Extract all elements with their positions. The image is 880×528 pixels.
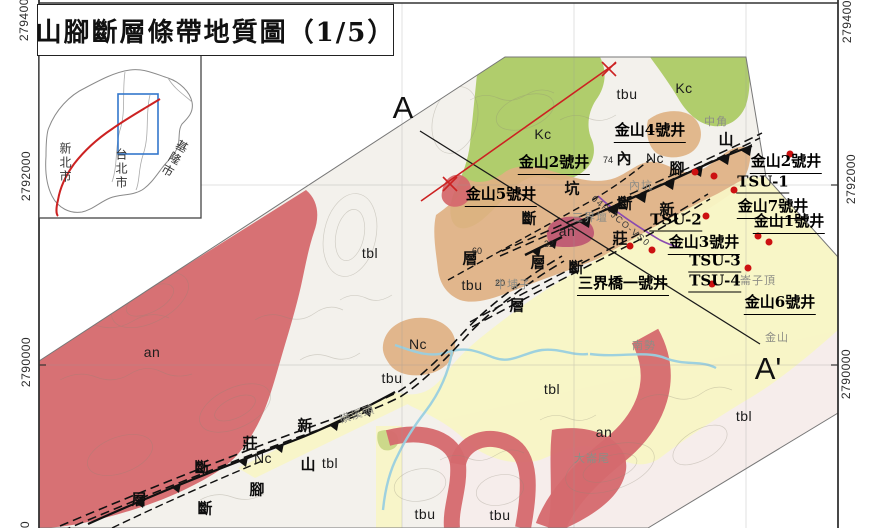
fault-name-char: 層 <box>509 295 524 316</box>
grid-coordinate-label: 2788000 <box>18 521 32 528</box>
place-name: 內坑 <box>629 177 653 193</box>
map-title-box: 山腳斷層條帶地質圖（1/5） <box>37 4 394 56</box>
well-marker <box>711 173 718 180</box>
unit-label: tbu <box>382 370 403 386</box>
well-label: TSU-1 <box>736 173 789 194</box>
well-label: TSU-3 <box>688 252 741 273</box>
dip-value: 32 <box>544 239 554 249</box>
geological-map-sheet: 山腳斷層條帶地質圖（1/5） 新北市 台北市 基隆市 anananKcKctbu… <box>0 0 880 528</box>
unit-label: tbu <box>415 506 436 522</box>
unit-label: Kc <box>534 126 551 142</box>
well-label: 金山5號井 <box>465 183 537 207</box>
fault-name-char: 斷 <box>568 257 583 278</box>
well-label: 金山2號井 <box>750 150 822 174</box>
place-name: 金山 <box>765 329 789 345</box>
fault-name-char: 腳 <box>249 479 264 500</box>
unit-label: tbl <box>322 455 338 471</box>
fault-name-char: 斷 <box>194 457 209 478</box>
fault-name-char: 山 <box>300 454 315 475</box>
fault-name-char: 山 <box>718 129 733 150</box>
fault-name-char: 層 <box>131 489 146 510</box>
unit-label: tbl <box>544 381 560 397</box>
inset-label-new-taipei: 新北市 <box>57 142 74 184</box>
fault-name-char: 莊 <box>242 433 257 454</box>
well-marker <box>766 239 773 246</box>
unit-label: an <box>559 223 576 239</box>
unit-label: Kc <box>675 80 692 96</box>
unit-label: tbu <box>462 277 483 293</box>
unit-label: tbl <box>736 408 752 424</box>
grid-coordinate-label: 2792000 <box>844 154 858 204</box>
place-name: 大崙尾 <box>574 450 610 466</box>
place-name: 南勢 <box>632 337 656 353</box>
well-marker <box>692 169 699 176</box>
dip-value: 74 <box>603 155 613 165</box>
fault-name-char: 新 <box>659 199 674 220</box>
fault-name-char: 斷 <box>197 498 212 519</box>
unit-label: Nc <box>409 336 427 352</box>
inset-label-taipei: 台北市 <box>113 148 130 190</box>
unit-label: tbu <box>617 86 638 102</box>
well-marker <box>627 243 634 250</box>
unit-label: an <box>596 424 613 440</box>
fault-name-char: 斷 <box>617 193 632 214</box>
well-marker <box>703 213 710 220</box>
unit-label: Nc <box>646 150 664 166</box>
place-name: 牛埔子 <box>495 276 531 292</box>
well-label: 金山1號井 <box>753 210 825 234</box>
grid-coordinate-label: 2794000 <box>840 0 854 43</box>
well-label: 金山6號井 <box>744 291 816 315</box>
fault-name-char: 斷 <box>521 208 536 229</box>
well-label: 金山4號井 <box>614 119 686 143</box>
well-label: TSU-4 <box>688 272 741 293</box>
map-title: 山腳斷層條帶地質圖（1/5） <box>36 12 396 49</box>
grid-coordinate-label: 2790000 <box>839 349 853 399</box>
place-name: 中角 <box>704 113 728 129</box>
fault-name-char: 新 <box>297 415 312 436</box>
section-endpoint-label: A <box>393 90 414 126</box>
fault-name-char: 坑 <box>564 178 579 199</box>
place-name: 崙子頂 <box>740 272 776 288</box>
section-endpoint-label: A' <box>755 351 782 387</box>
well-marker <box>649 247 656 254</box>
unit-label: tbu <box>490 507 511 523</box>
well-marker <box>745 265 752 272</box>
well-label: 三界橋一號井 <box>577 272 669 296</box>
well-label: TSU-2 <box>649 211 702 232</box>
unit-label: an <box>144 344 161 360</box>
grid-coordinate-label: 2794000 <box>17 0 31 41</box>
unit-label: tbl <box>362 245 378 261</box>
dip-value: 60 <box>472 246 482 256</box>
fault-name-char: 層 <box>530 252 545 273</box>
fault-name-char: 內 <box>616 148 631 169</box>
grid-coordinate-label: 2790000 <box>19 337 33 387</box>
well-label: 金山2號井 <box>518 151 590 175</box>
fault-name-char: 腳 <box>669 158 684 179</box>
grid-coordinate-label: 2792000 <box>19 151 33 201</box>
